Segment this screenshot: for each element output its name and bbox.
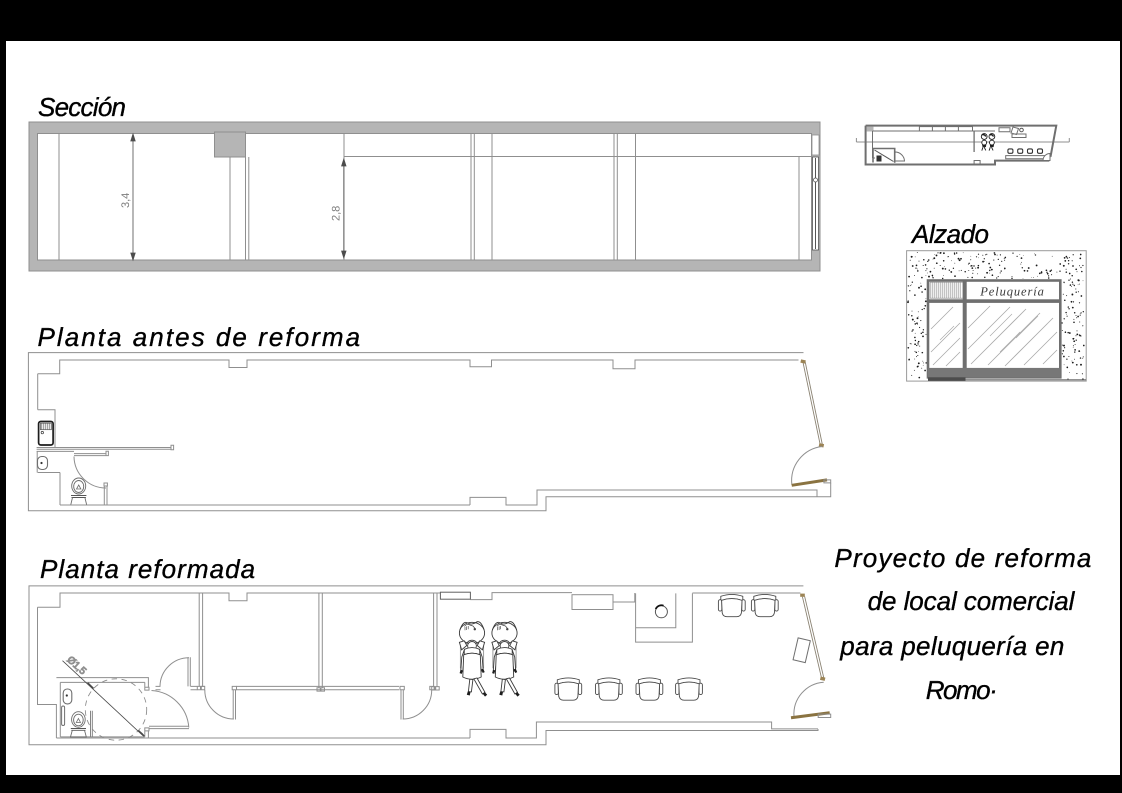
svg-text:Proyecto de reforma: Proyecto de reforma [834, 543, 1092, 573]
svg-text:3,4: 3,4 [120, 193, 132, 208]
svg-text:Romo·: Romo· [926, 675, 997, 705]
svg-text:2,8: 2,8 [331, 206, 343, 221]
svg-text:Planta reformada: Planta reformada [40, 554, 256, 584]
svg-text:Alzado: Alzado [910, 219, 989, 249]
svg-text:Peluquería: Peluquería [979, 285, 1045, 299]
svg-text:Planta antes de reforma: Planta antes de reforma [38, 322, 363, 352]
svg-text:para peluquería en: para peluquería en [839, 631, 1064, 661]
svg-text:de local comercial: de local comercial [868, 586, 1076, 616]
svg-text:Sección: Sección [38, 92, 126, 122]
